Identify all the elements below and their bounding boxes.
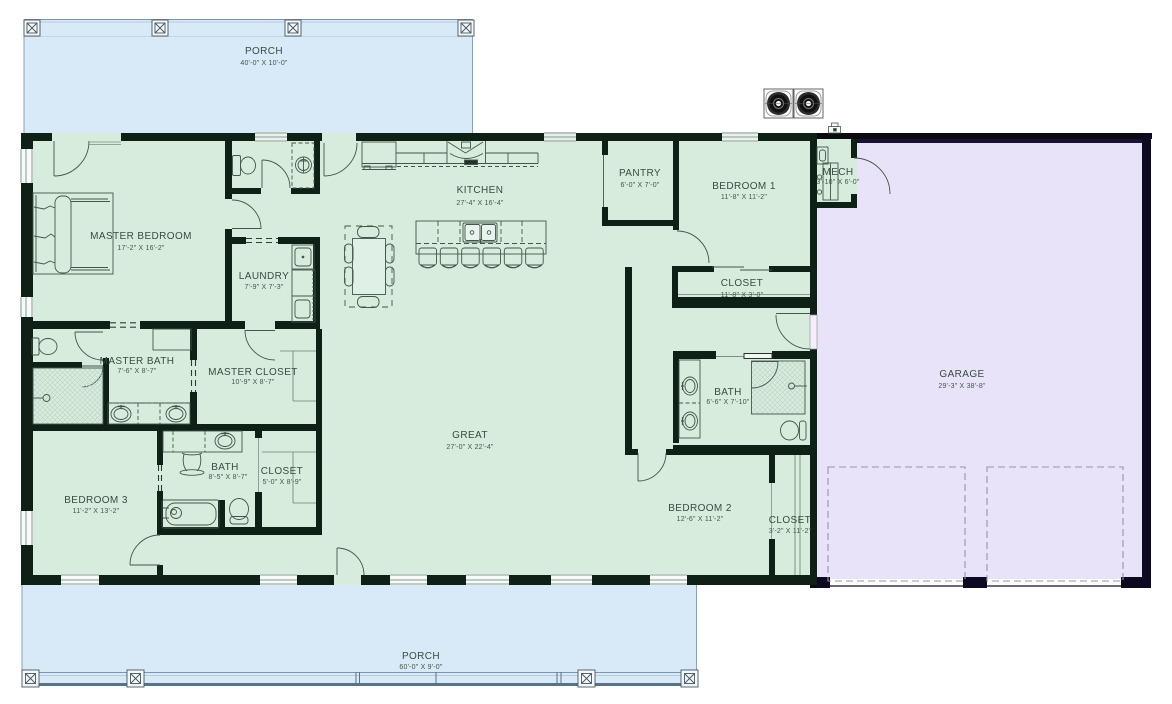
svg-text:3'-2" X 11'-2": 3'-2" X 11'-2" bbox=[769, 528, 812, 535]
svg-text:11'-2" X 13'-2": 11'-2" X 13'-2" bbox=[73, 508, 120, 515]
svg-text:LAUNDRY: LAUNDRY bbox=[239, 271, 289, 282]
svg-text:17'-2" X 16'-2": 17'-2" X 16'-2" bbox=[117, 245, 165, 252]
svg-text:60'-0" X 9'-0": 60'-0" X 9'-0" bbox=[399, 664, 442, 671]
svg-text:11'-8" X 11'-2": 11'-8" X 11'-2" bbox=[721, 194, 767, 201]
svg-text:PANTRY: PANTRY bbox=[619, 168, 661, 179]
svg-text:5'-0" X 8'-9": 5'-0" X 8'-9" bbox=[262, 479, 301, 486]
svg-text:MASTER BEDROOM: MASTER BEDROOM bbox=[90, 231, 192, 242]
svg-text:40'-0" X 10'-0": 40'-0" X 10'-0" bbox=[240, 60, 288, 67]
svg-text:BEDROOM 3: BEDROOM 3 bbox=[64, 495, 128, 506]
svg-text:GREAT: GREAT bbox=[452, 430, 488, 441]
svg-text:7'-9" X 7'-3": 7'-9" X 7'-3" bbox=[244, 284, 283, 291]
svg-text:BEDROOM 1: BEDROOM 1 bbox=[712, 181, 776, 192]
svg-text:PORCH: PORCH bbox=[402, 651, 440, 662]
svg-text:27'-0" X 22'-4": 27'-0" X 22'-4" bbox=[446, 444, 494, 451]
svg-text:CLOSET: CLOSET bbox=[769, 515, 811, 526]
svg-text:BATH: BATH bbox=[211, 462, 239, 473]
svg-text:CLOSET: CLOSET bbox=[261, 466, 303, 477]
svg-text:GARAGE: GARAGE bbox=[939, 369, 984, 380]
svg-text:3'-10" X 6'-0": 3'-10" X 6'-0" bbox=[816, 179, 859, 186]
svg-text:BATH: BATH bbox=[714, 387, 742, 398]
svg-text:7'-6" X 8'-7": 7'-6" X 8'-7" bbox=[117, 368, 156, 375]
svg-text:6'-0" X 7'-0": 6'-0" X 7'-0" bbox=[620, 182, 659, 189]
svg-text:PORCH: PORCH bbox=[245, 46, 283, 57]
svg-text:8'-5" X 8'-7": 8'-5" X 8'-7" bbox=[208, 474, 247, 481]
svg-text:MECH: MECH bbox=[822, 167, 853, 178]
svg-text:29'-3" X 38'-8": 29'-3" X 38'-8" bbox=[938, 383, 986, 390]
svg-text:12'-6" X 11'-2": 12'-6" X 11'-2" bbox=[677, 516, 724, 523]
svg-text:MASTER BATH: MASTER BATH bbox=[100, 356, 175, 367]
svg-text:27'-4" X 16'-4": 27'-4" X 16'-4" bbox=[456, 200, 504, 207]
svg-text:11'-8" X 3'-0": 11'-8" X 3'-0" bbox=[721, 292, 764, 299]
svg-text:MASTER CLOSET: MASTER CLOSET bbox=[208, 367, 298, 378]
svg-text:KITCHEN: KITCHEN bbox=[457, 185, 504, 196]
svg-text:10'-9" X 8'-7": 10'-9" X 8'-7" bbox=[231, 379, 274, 386]
svg-text:6'-6" X 7'-10": 6'-6" X 7'-10" bbox=[706, 399, 749, 406]
svg-text:CLOSET: CLOSET bbox=[721, 278, 763, 289]
svg-text:BEDROOM 2: BEDROOM 2 bbox=[668, 503, 732, 514]
